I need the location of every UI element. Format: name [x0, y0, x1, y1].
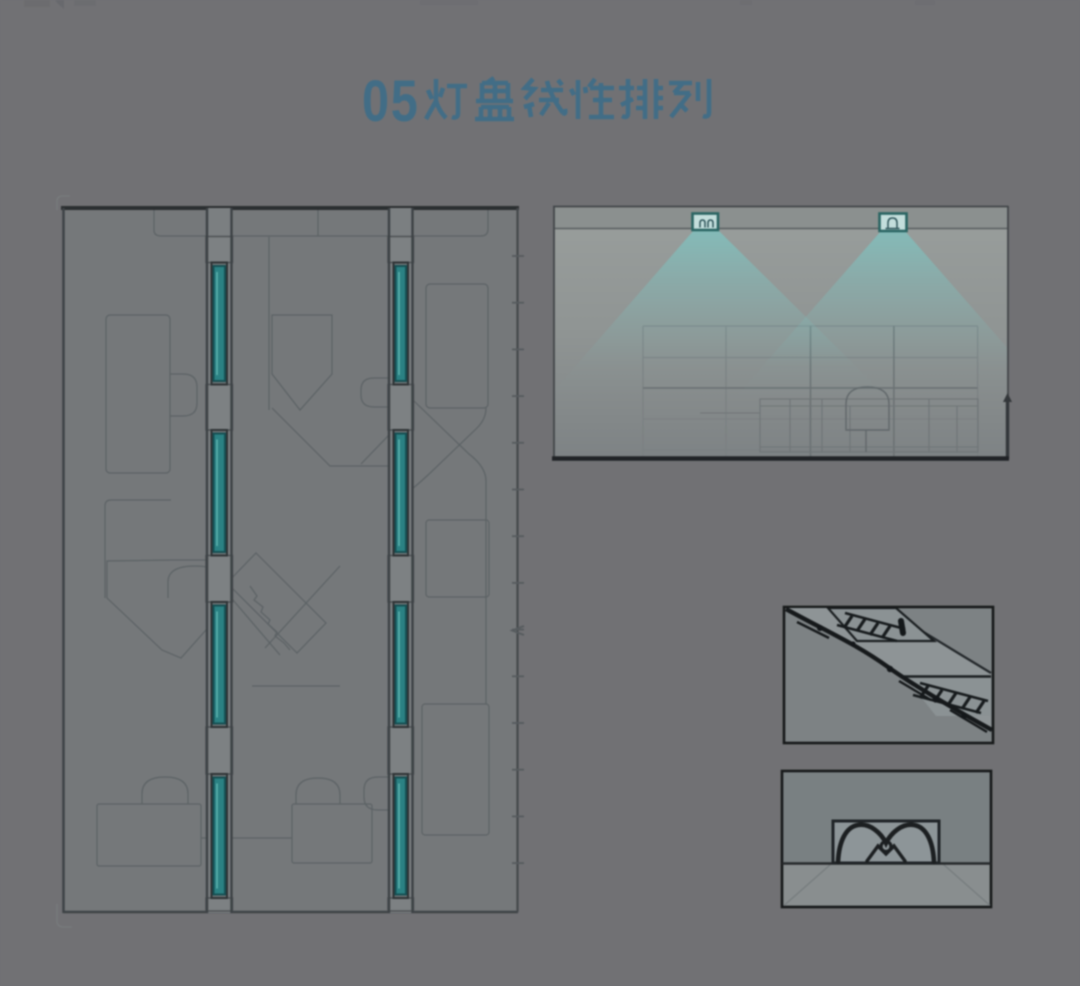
- svg-text:05: 05: [362, 70, 420, 134]
